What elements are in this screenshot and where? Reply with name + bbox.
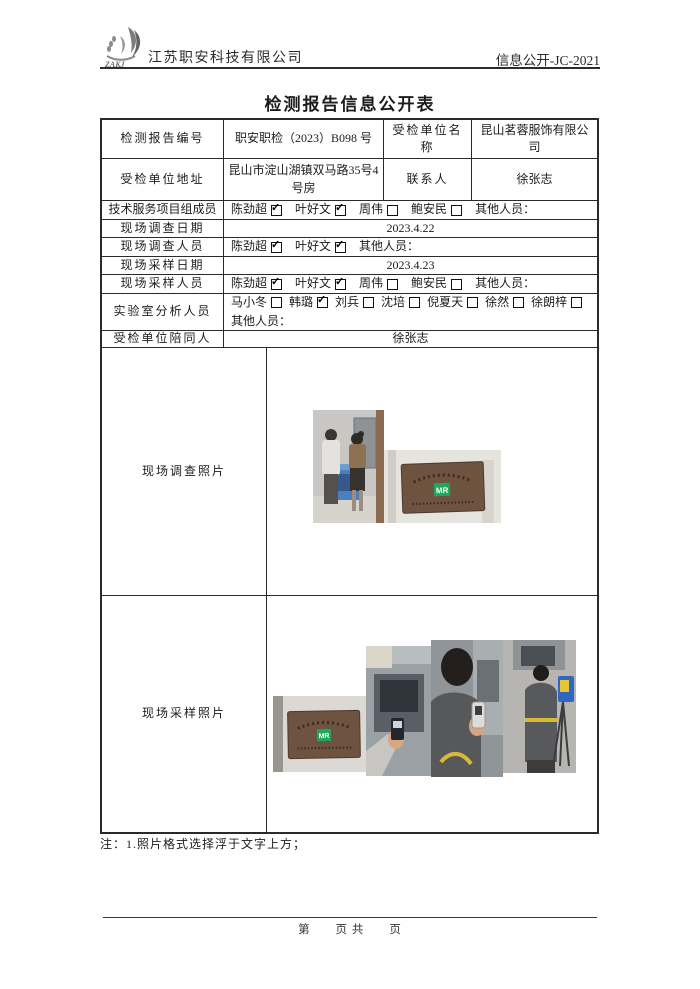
- staff-member: 徐然: [485, 294, 524, 311]
- checkbox-unchecked[interactable]: [363, 297, 374, 308]
- staff-member: 鲍安民: [411, 201, 462, 218]
- table-row-survey-photos: 现场调查照片: [102, 348, 597, 596]
- table-row-report: 检测报告编号 职安职检（2023）B098 号 受检单位名称 昆山茗蓉服饰有限公…: [102, 120, 597, 159]
- document-header: ZAKJ 江苏职安科技有限公司 信息公开-JC-2021: [100, 26, 600, 66]
- other-staff-label: 其他人员：: [231, 313, 291, 330]
- sample-staff-label: 现场采样人员: [102, 275, 224, 294]
- survey-staff-label: 现场调查人员: [102, 238, 224, 257]
- doc-code: 信息公开-JC-2021: [496, 49, 600, 69]
- staff-member: 陈劲超: [231, 238, 282, 255]
- tech-team-cell: 陈劲超叶好文周伟鲍安民 其他人员：: [224, 201, 597, 220]
- unit-addr-value: 昆山市淀山湖镇双马路35号4号房: [224, 159, 384, 201]
- unit-name-label: 受检单位名称: [384, 120, 472, 159]
- report-no-label: 检测报告编号: [102, 120, 224, 159]
- staff-member: 周伟: [359, 275, 398, 292]
- staff-name: 倪夏天: [427, 294, 463, 311]
- header-divider: [100, 67, 600, 69]
- staff-name: 沈培: [381, 294, 405, 311]
- document-page: ZAKJ 江苏职安科技有限公司 信息公开-JC-2021 检测报告信息公开表 检…: [0, 0, 700, 989]
- checkbox-checked[interactable]: [335, 205, 346, 216]
- checkbox-checked[interactable]: [271, 205, 282, 216]
- table-row-lab-staff: 实验室分析人员 马小冬韩璐刘兵沈培倪夏天徐然徐朗梓 其他人员：: [102, 294, 597, 331]
- checkbox-unchecked[interactable]: [513, 297, 524, 308]
- table-row-sample-date: 现场采样日期 2023.4.23: [102, 257, 597, 275]
- checkbox-unchecked[interactable]: [387, 205, 398, 216]
- staff-name: 鲍安民: [411, 201, 447, 218]
- sample-staff-cell: 陈劲超叶好文周伟鲍安民 其他人员：: [224, 275, 597, 294]
- table-row-sample-staff: 现场采样人员 陈劲超叶好文周伟鲍安民 其他人员：: [102, 275, 597, 294]
- lab-staff-checkbox-group: 马小冬韩璐刘兵沈培倪夏天徐然徐朗梓: [231, 294, 582, 311]
- report-no-value: 职安职检（2023）B098 号: [224, 120, 384, 159]
- checkbox-unchecked[interactable]: [409, 297, 420, 308]
- sample-photos-cell: MR: [267, 596, 597, 832]
- sample-staff-checkbox-group: 陈劲超叶好文周伟鲍安民: [231, 275, 462, 292]
- sample-date-value: 2023.4.23: [224, 257, 597, 275]
- photo-sample-plaque: MR: [273, 696, 373, 772]
- staff-member: 叶好文: [295, 238, 346, 255]
- staff-name: 马小冬: [231, 294, 267, 311]
- staff-member: 周伟: [359, 201, 398, 218]
- page-number-text: 第 页 共 页: [0, 921, 700, 937]
- table-row-address: 受检单位地址 昆山市淀山湖镇双马路35号4号房 联系人 徐张志: [102, 159, 597, 201]
- photo-sample-meter-reading: [431, 640, 503, 777]
- checkbox-checked[interactable]: [271, 242, 282, 253]
- checkbox-unchecked[interactable]: [571, 297, 582, 308]
- photo-survey-plaque: MR: [384, 450, 501, 523]
- staff-name: 徐然: [485, 294, 509, 311]
- staff-member: 叶好文: [295, 201, 346, 218]
- escort-value: 徐张志: [224, 331, 597, 348]
- plaque-mr-logo: MR: [436, 486, 449, 495]
- checkbox-checked[interactable]: [335, 242, 346, 253]
- checkbox-unchecked[interactable]: [467, 297, 478, 308]
- staff-name: 周伟: [359, 201, 383, 218]
- sample-photos-label: 现场采样照片: [102, 596, 267, 832]
- info-table: 检测报告编号 职安职检（2023）B098 号 受检单位名称 昆山茗蓉服饰有限公…: [100, 118, 599, 834]
- tech-team-checkbox-group: 陈劲超叶好文周伟鲍安民: [231, 201, 462, 218]
- other-staff-label: 其他人员：: [475, 275, 535, 292]
- survey-photos-label: 现场调查照片: [102, 348, 267, 596]
- company-name: 江苏职安科技有限公司: [148, 47, 303, 67]
- escort-label: 受检单位陪同人: [102, 331, 224, 348]
- staff-name: 陈劲超: [231, 275, 267, 292]
- company-logo-icon: ZAKJ: [100, 26, 148, 68]
- staff-member: 马小冬: [231, 294, 282, 311]
- other-staff-label: 其他人员：: [475, 201, 535, 218]
- staff-name: 韩璐: [289, 294, 313, 311]
- survey-staff-cell: 陈劲超叶好文 其他人员：: [224, 238, 597, 257]
- contact-value: 徐张志: [472, 159, 597, 201]
- photo-sample-tripod-sampler: [503, 640, 576, 773]
- checkbox-checked[interactable]: [317, 297, 328, 308]
- checkbox-unchecked[interactable]: [451, 205, 462, 216]
- checkbox-unchecked[interactable]: [271, 297, 282, 308]
- photo-survey-people-machine: [313, 410, 384, 523]
- contact-label: 联系人: [384, 159, 472, 201]
- staff-name: 陈劲超: [231, 238, 267, 255]
- staff-member: 叶好文: [295, 275, 346, 292]
- unit-addr-label: 受检单位地址: [102, 159, 224, 201]
- survey-staff-checkbox-group: 陈劲超叶好文: [231, 238, 346, 255]
- survey-date-value: 2023.4.22: [224, 220, 597, 238]
- other-staff-label: 其他人员：: [359, 238, 419, 255]
- staff-name: 叶好文: [295, 238, 331, 255]
- plaque-mr-logo: MR: [319, 733, 330, 740]
- lab-staff-cell: 马小冬韩璐刘兵沈培倪夏天徐然徐朗梓 其他人员：: [224, 294, 597, 331]
- staff-member: 陈劲超: [231, 275, 282, 292]
- table-row-escort: 受检单位陪同人 徐张志: [102, 331, 597, 348]
- staff-name: 陈劲超: [231, 201, 267, 218]
- lab-staff-label: 实验室分析人员: [102, 294, 224, 331]
- unit-name-value: 昆山茗蓉服饰有限公司: [472, 120, 597, 159]
- footer-divider: [103, 917, 597, 918]
- checkbox-unchecked[interactable]: [387, 279, 398, 290]
- sample-date-label: 现场采样日期: [102, 257, 224, 275]
- tech-team-label: 技术服务项目组成员: [102, 201, 224, 220]
- checkbox-checked[interactable]: [335, 279, 346, 290]
- footnote: 注：1.照片格式选择浮于文字上方；: [100, 835, 306, 852]
- staff-member: 鲍安民: [411, 275, 462, 292]
- staff-member: 倪夏天: [427, 294, 478, 311]
- staff-name: 叶好文: [295, 201, 331, 218]
- checkbox-checked[interactable]: [271, 279, 282, 290]
- staff-name: 徐朗梓: [531, 294, 567, 311]
- staff-member: 刘兵: [335, 294, 374, 311]
- staff-member: 徐朗梓: [531, 294, 582, 311]
- survey-photos-cell: MR: [267, 348, 597, 596]
- table-row-survey-date: 现场调查日期 2023.4.22: [102, 220, 597, 238]
- survey-date-label: 现场调查日期: [102, 220, 224, 238]
- staff-name: 刘兵: [335, 294, 359, 311]
- photo-sample-handheld-device: [366, 646, 431, 776]
- staff-member: 韩璐: [289, 294, 328, 311]
- staff-name: 叶好文: [295, 275, 331, 292]
- table-row-survey-staff: 现场调查人员 陈劲超叶好文 其他人员：: [102, 238, 597, 257]
- staff-name: 周伟: [359, 275, 383, 292]
- table-row-tech-team: 技术服务项目组成员 陈劲超叶好文周伟鲍安民 其他人员：: [102, 201, 597, 220]
- checkbox-unchecked[interactable]: [451, 279, 462, 290]
- staff-member: 沈培: [381, 294, 420, 311]
- staff-member: 陈劲超: [231, 201, 282, 218]
- staff-name: 鲍安民: [411, 275, 447, 292]
- page-title: 检测报告信息公开表: [0, 90, 700, 115]
- table-row-sample-photos: 现场采样照片 MR: [102, 596, 597, 832]
